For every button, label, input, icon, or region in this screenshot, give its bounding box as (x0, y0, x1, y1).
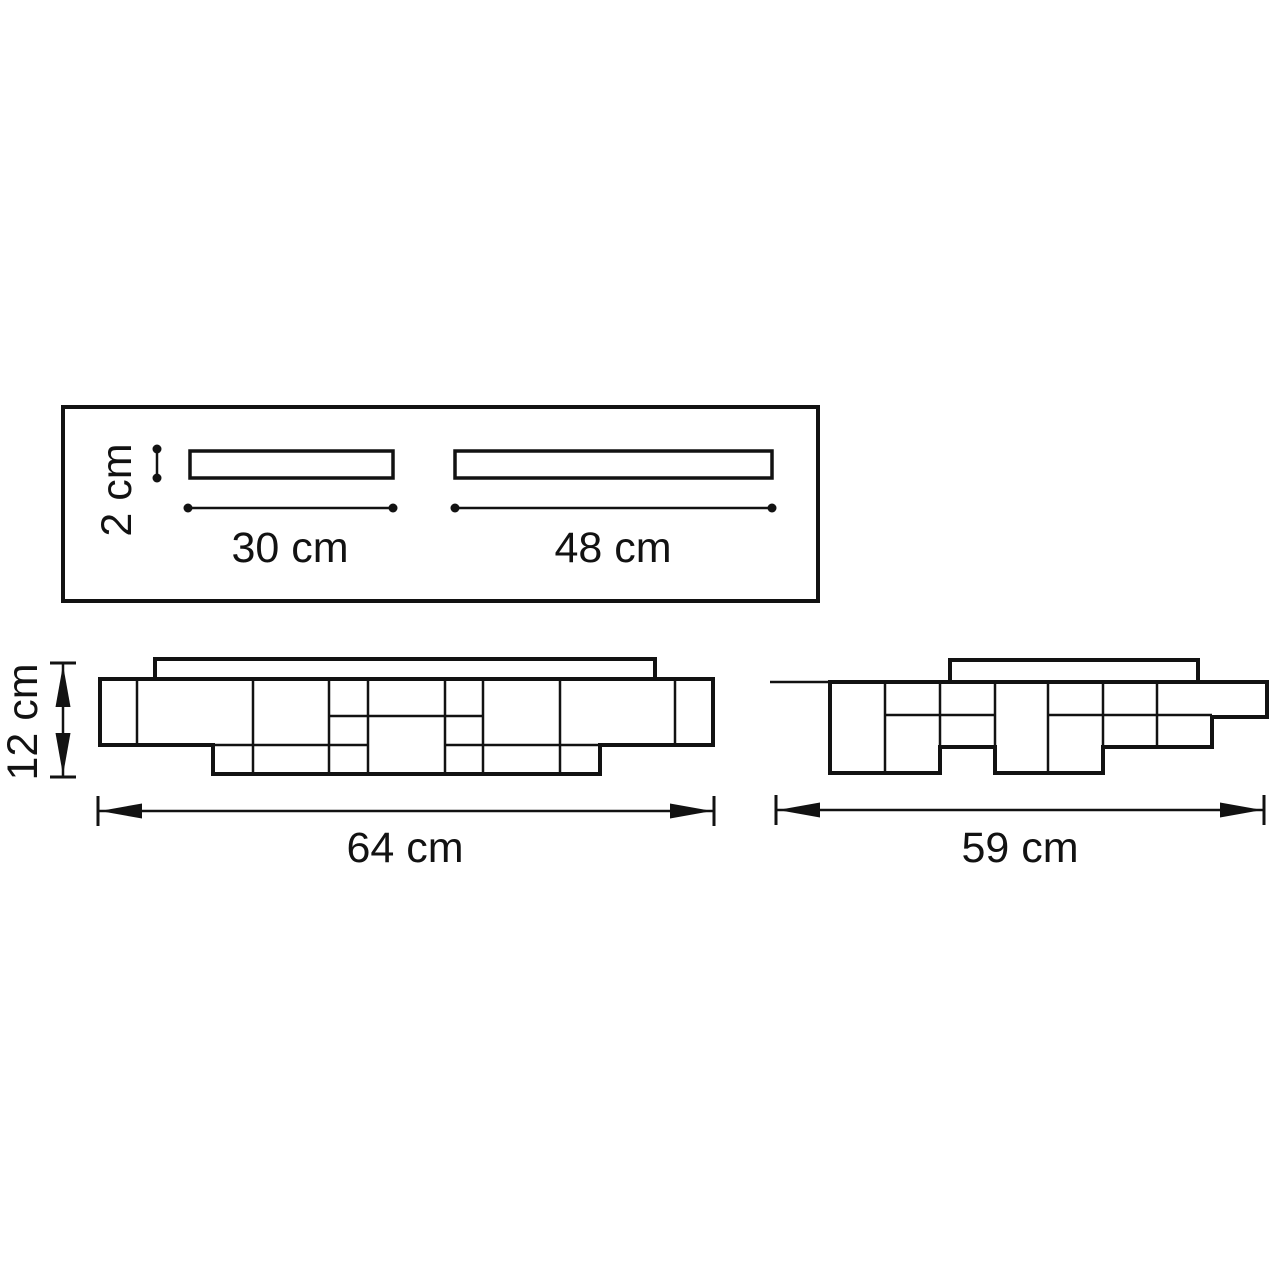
dim-12cm-arrow (50, 663, 76, 777)
dim-30cm-line (184, 504, 398, 513)
large-plate-length-label: 48 cm (554, 524, 671, 572)
side-width-label: 59 cm (961, 824, 1078, 872)
front-view: 12 cm 64 cm (0, 659, 714, 872)
plan-view: 2 cm 30 cm 48 cm (63, 407, 818, 601)
front-view-shapes (50, 659, 714, 826)
plate-thickness-label: 2 cm (93, 443, 141, 536)
front-canopy (155, 659, 655, 679)
plan-view-shapes (63, 407, 818, 601)
drawing-canvas: 2 cm 30 cm 48 cm 12 cm 64 cm 59 cm (0, 0, 1280, 1280)
dim-59cm-arrow (776, 795, 1264, 825)
dim-64cm-arrow (98, 796, 714, 826)
front-width-label: 64 cm (346, 824, 463, 872)
side-view-shapes (770, 660, 1267, 825)
fixture-dimensional-diagram: 2 cm 30 cm 48 cm 12 cm 64 cm 59 cm (0, 0, 1280, 1280)
plan-bar-30cm (190, 451, 393, 478)
dim-2cm-line (153, 445, 162, 483)
side-canopy (950, 660, 1198, 682)
fixture-height-label: 12 cm (0, 663, 47, 780)
plan-bar-48cm (455, 451, 772, 478)
front-body-outline (100, 679, 713, 774)
small-plate-length-label: 30 cm (231, 524, 348, 572)
side-view: 59 cm (770, 660, 1267, 872)
plan-outline (63, 407, 818, 601)
dim-48cm-line (451, 504, 777, 513)
